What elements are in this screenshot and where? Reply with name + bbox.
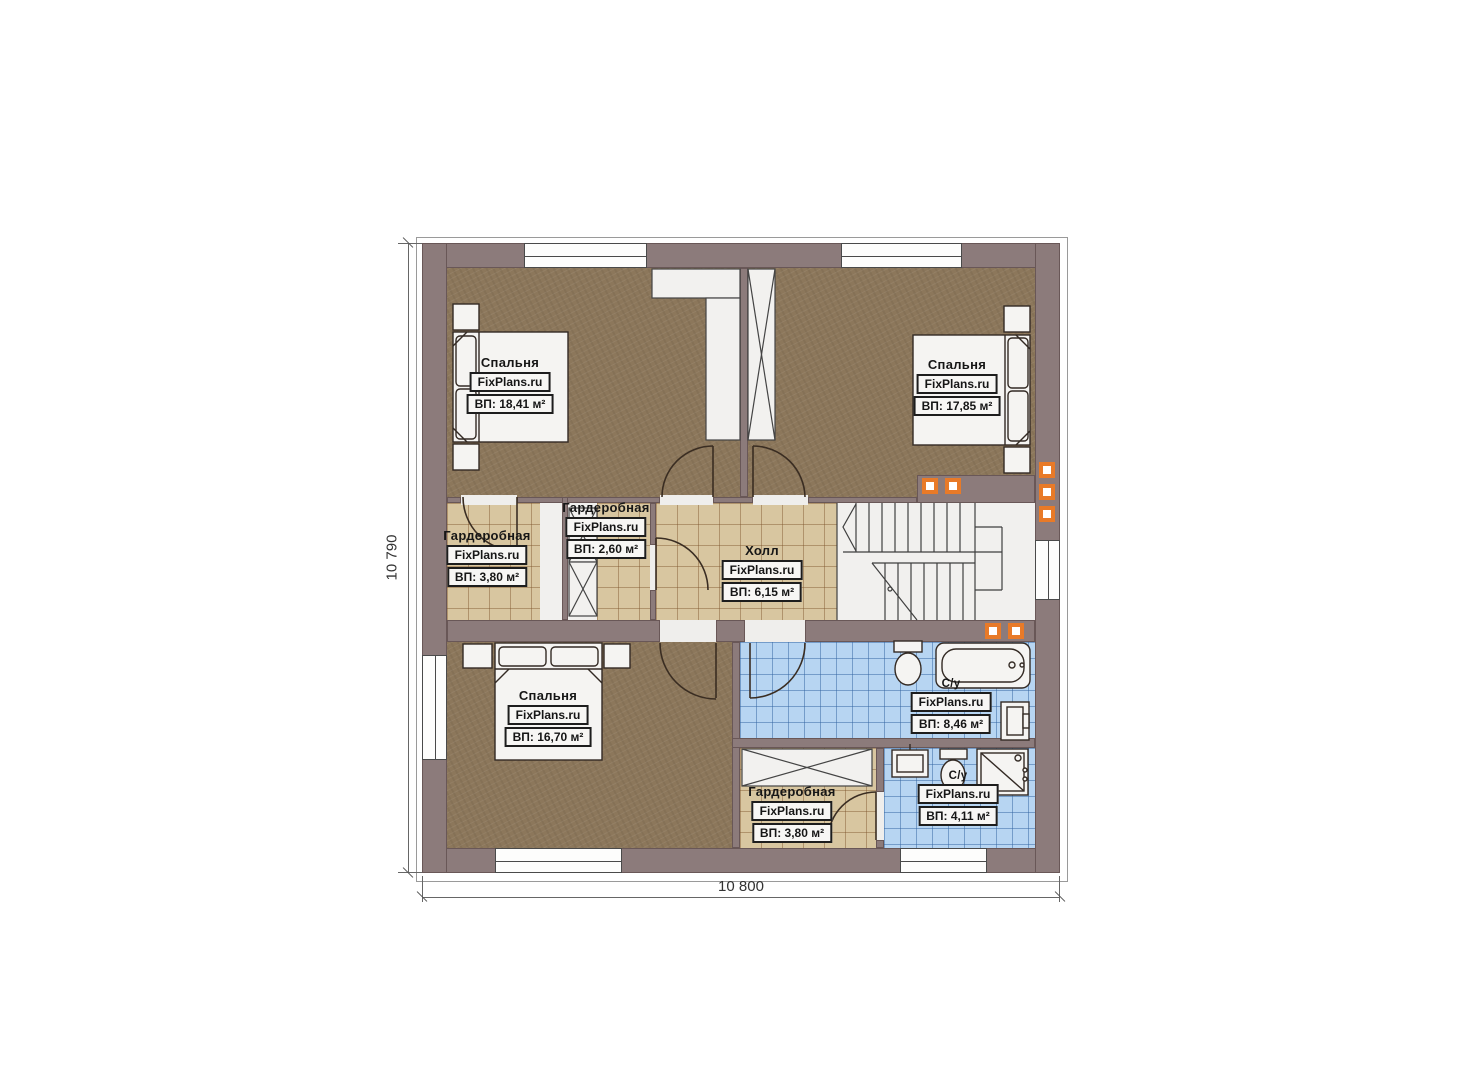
vent-marker-icon (945, 478, 961, 494)
threshold-bedroom-bottom (660, 620, 716, 642)
wall-h2-a (447, 620, 660, 642)
floor-stairwell (837, 503, 1035, 620)
window-top-right (841, 243, 962, 268)
room-area: ВП: 3,80 м² (752, 823, 832, 843)
window-bottom-right (900, 848, 987, 873)
room-brand: FixPlans.ru (508, 705, 589, 725)
threshold-bedroom-2 (753, 495, 808, 505)
dimension-ext-bottom-right (1059, 876, 1060, 902)
threshold-bedroom-1 (660, 495, 713, 505)
room-label-wardrobe-bottom: Гардеробная FixPlans.ru ВП: 3,80 м² (748, 784, 835, 843)
room-name: Холл (722, 543, 803, 558)
threshold-wardrobe-center (650, 545, 656, 590)
floor-plan-canvas: Спальня FixPlans.ru ВП: 18,41 м² Спальня… (0, 0, 1473, 1080)
wall-h1-a (447, 497, 461, 503)
room-label-bedroom-bottom: Спальня FixPlans.ru ВП: 16,70 м² (505, 688, 592, 747)
floor-wardrobe-left-niche (540, 503, 562, 620)
room-brand: FixPlans.ru (918, 784, 999, 804)
room-area: ВП: 3,80 м² (447, 567, 527, 587)
room-brand: FixPlans.ru (917, 374, 998, 394)
room-brand: FixPlans.ru (566, 517, 647, 537)
vent-marker-icon (1039, 484, 1055, 500)
room-area: ВП: 6,15 м² (722, 582, 802, 602)
wall-v-hall-stub-bottom (650, 590, 656, 620)
room-brand: FixPlans.ru (470, 372, 551, 392)
room-label-bathroom-large: С/у FixPlans.ru ВП: 8,46 м² (911, 678, 992, 734)
room-name: С/у (918, 770, 999, 782)
room-name: С/у (911, 678, 992, 690)
wall-h1-d (808, 497, 917, 503)
room-brand: FixPlans.ru (911, 692, 992, 712)
room-label-wardrobe-left: Гардеробная FixPlans.ru ВП: 3,80 м² (443, 528, 530, 587)
wall-h2-b (716, 620, 745, 642)
window-right-wall (1035, 540, 1060, 600)
wall-outer-top (422, 243, 1060, 268)
threshold-bathroom-large (745, 620, 805, 642)
threshold-wardrobe-left (461, 495, 517, 505)
wall-v-wc-b (876, 840, 884, 848)
room-name: Гардеробная (748, 784, 835, 799)
wall-h-bath-split (732, 738, 1035, 748)
room-brand: FixPlans.ru (752, 801, 833, 821)
wall-v-bedrooms (740, 268, 748, 497)
room-area: ВП: 4,11 м² (918, 806, 998, 826)
wall-v-wc-a (876, 748, 884, 792)
window-left-wall (422, 655, 447, 760)
room-area: ВП: 8,46 м² (911, 714, 991, 734)
room-name: Спальня (914, 357, 1001, 372)
room-label-bathroom-small: С/у FixPlans.ru ВП: 4,11 м² (918, 770, 999, 826)
wall-h1-c (713, 497, 753, 503)
room-area: ВП: 16,70 м² (505, 727, 592, 747)
dimension-height-label: 10 790 (384, 518, 401, 598)
wall-v-hall-stub-top (650, 503, 656, 545)
dimension-width-label: 10 800 (718, 878, 764, 895)
vent-marker-icon (1008, 623, 1024, 639)
room-name: Гардеробная (443, 528, 530, 543)
window-bottom-left (495, 848, 622, 873)
room-name: Гардеробная (562, 500, 649, 515)
room-area: ВП: 2,60 м² (566, 539, 646, 559)
room-label-wardrobe-center: Гардеробная FixPlans.ru ВП: 2,60 м² (562, 500, 649, 559)
vent-marker-icon (1039, 506, 1055, 522)
dimension-line-left (408, 243, 409, 873)
threshold-wardrobe-bottom (876, 792, 884, 840)
room-label-bedroom-top-left: Спальня FixPlans.ru ВП: 18,41 м² (467, 355, 554, 414)
room-brand: FixPlans.ru (722, 560, 803, 580)
room-label-bedroom-top-right: Спальня FixPlans.ru ВП: 17,85 м² (914, 357, 1001, 416)
vent-marker-icon (985, 623, 1001, 639)
dimension-line-bottom (422, 897, 1060, 898)
window-top-left (524, 243, 647, 268)
room-brand: FixPlans.ru (447, 545, 528, 565)
room-name: Спальня (505, 688, 592, 703)
vent-marker-icon (922, 478, 938, 494)
room-name: Спальня (467, 355, 554, 370)
room-area: ВП: 18,41 м² (467, 394, 554, 414)
vent-marker-icon (1039, 462, 1055, 478)
room-label-hall: Холл FixPlans.ru ВП: 6,15 м² (722, 543, 803, 602)
room-area: ВП: 17,85 м² (914, 396, 1001, 416)
